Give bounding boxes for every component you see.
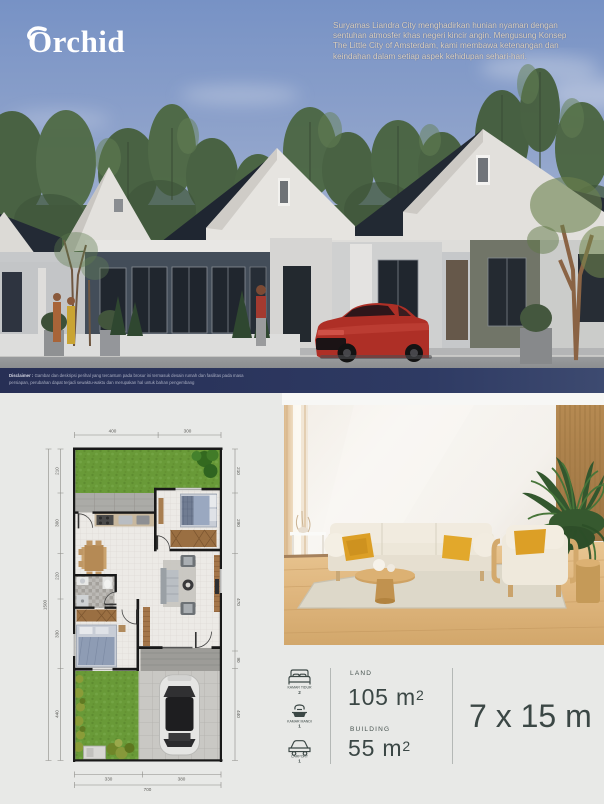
svg-text:90: 90 — [236, 657, 241, 663]
svg-text:1: 1 — [298, 724, 301, 729]
svg-text:210: 210 — [55, 467, 60, 475]
svg-text:Disclaimer : Gambar dan deskri: Disclaimer : Gambar dan deskripsi periha… — [9, 373, 244, 378]
svg-text:470: 470 — [236, 598, 241, 606]
svg-text:330: 330 — [105, 777, 113, 782]
svg-text:330: 330 — [55, 630, 60, 638]
svg-text:700: 700 — [144, 787, 152, 792]
svg-text:210: 210 — [236, 467, 241, 475]
svg-text:300: 300 — [55, 519, 60, 527]
svg-text:440: 440 — [55, 710, 60, 718]
svg-text:220: 220 — [55, 572, 60, 580]
svg-text:1500: 1500 — [43, 599, 48, 610]
svg-text:440: 440 — [236, 710, 241, 718]
svg-text:1: 1 — [298, 759, 301, 764]
svg-text:380: 380 — [178, 777, 186, 782]
svg-text:2: 2 — [298, 690, 301, 695]
svg-text:290: 290 — [236, 519, 241, 527]
svg-text:400: 400 — [109, 429, 117, 434]
svg-text:KAMAR TIDUR: KAMAR TIDUR — [287, 686, 312, 690]
svg-text:300: 300 — [184, 429, 192, 434]
svg-text:persiapan, perubahan dapat ter: persiapan, perubahan dapat terjadi sewak… — [9, 380, 195, 385]
